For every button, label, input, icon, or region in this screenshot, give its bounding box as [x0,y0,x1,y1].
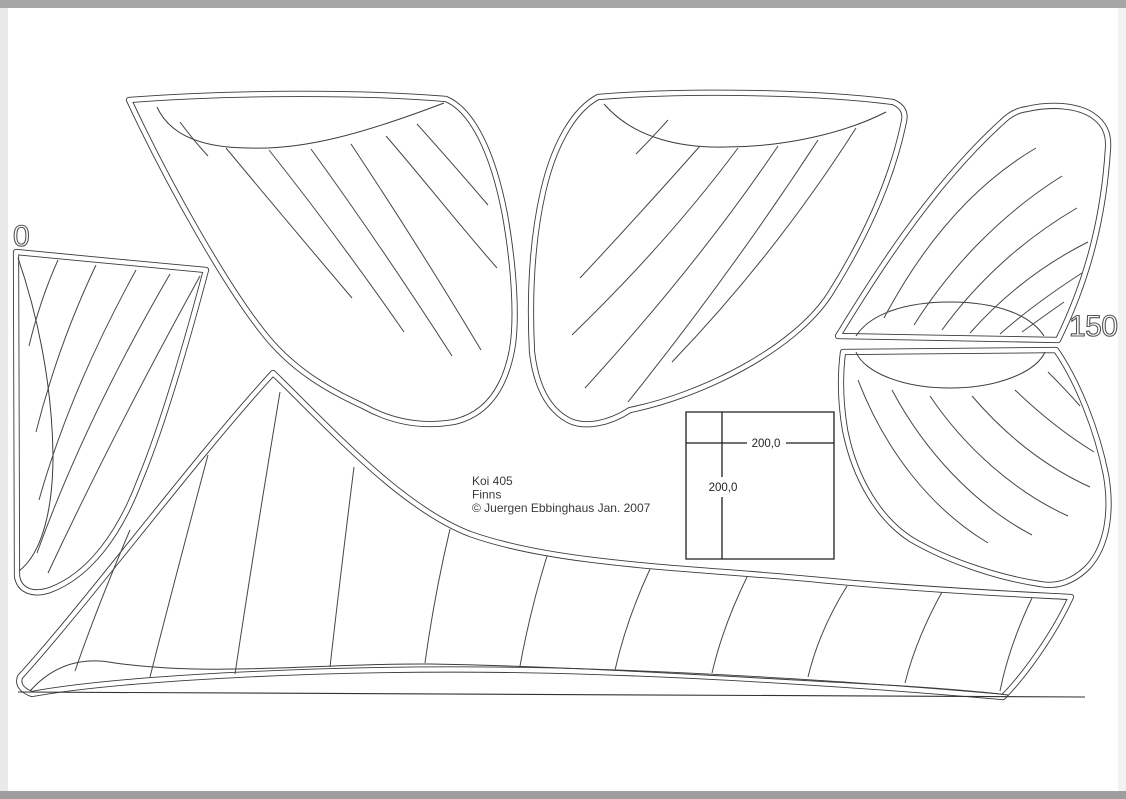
page-edge-left [0,8,8,791]
fin-top-left-ribs [180,122,497,356]
pattern-sheet-page: 200,0 200,0 Koi 405 Finns © Juergen Ebbi… [0,0,1126,799]
fin-pattern-drawing: 200,0 200,0 Koi 405 Finns © Juergen Ebbi… [0,0,1126,799]
ruler-label-right: 150 [1069,310,1118,343]
fin-bottom-long [18,373,1085,697]
scale-reference-box: 200,0 200,0 [686,412,834,559]
scale-height-label: 200,0 [709,482,738,494]
fin-right-lower [841,350,1109,585]
fin-top-middle-ribs [572,120,856,402]
fin-top-left-fan-arc [157,103,444,148]
title-block: Koi 405 Finns © Juergen Ebbinghaus Jan. … [472,474,651,515]
fin-right-upper [838,106,1108,340]
fin-right-lower-ribs [858,372,1094,543]
page-edge-top [0,0,1126,8]
ruler-label-left: 0 [13,220,29,253]
fin-top-middle [531,93,904,425]
fin-base-ellipse [856,302,1045,388]
drawing-title: Koi 405 [472,474,513,488]
fin-left-small [16,252,206,592]
drawing-subtitle: Finns [472,488,501,502]
scale-width-label: 200,0 [752,438,781,450]
fin-top-left [129,94,515,424]
drawing-copyright: © Juergen Ebbinghaus Jan. 2007 [472,501,651,515]
fin-right-upper-ribs [884,148,1088,334]
fin-top-middle-fan-arc [604,104,886,147]
fin-left-small-ribs [29,260,200,573]
page-edge-right [1118,8,1126,791]
page-edge-bottom [0,791,1126,799]
